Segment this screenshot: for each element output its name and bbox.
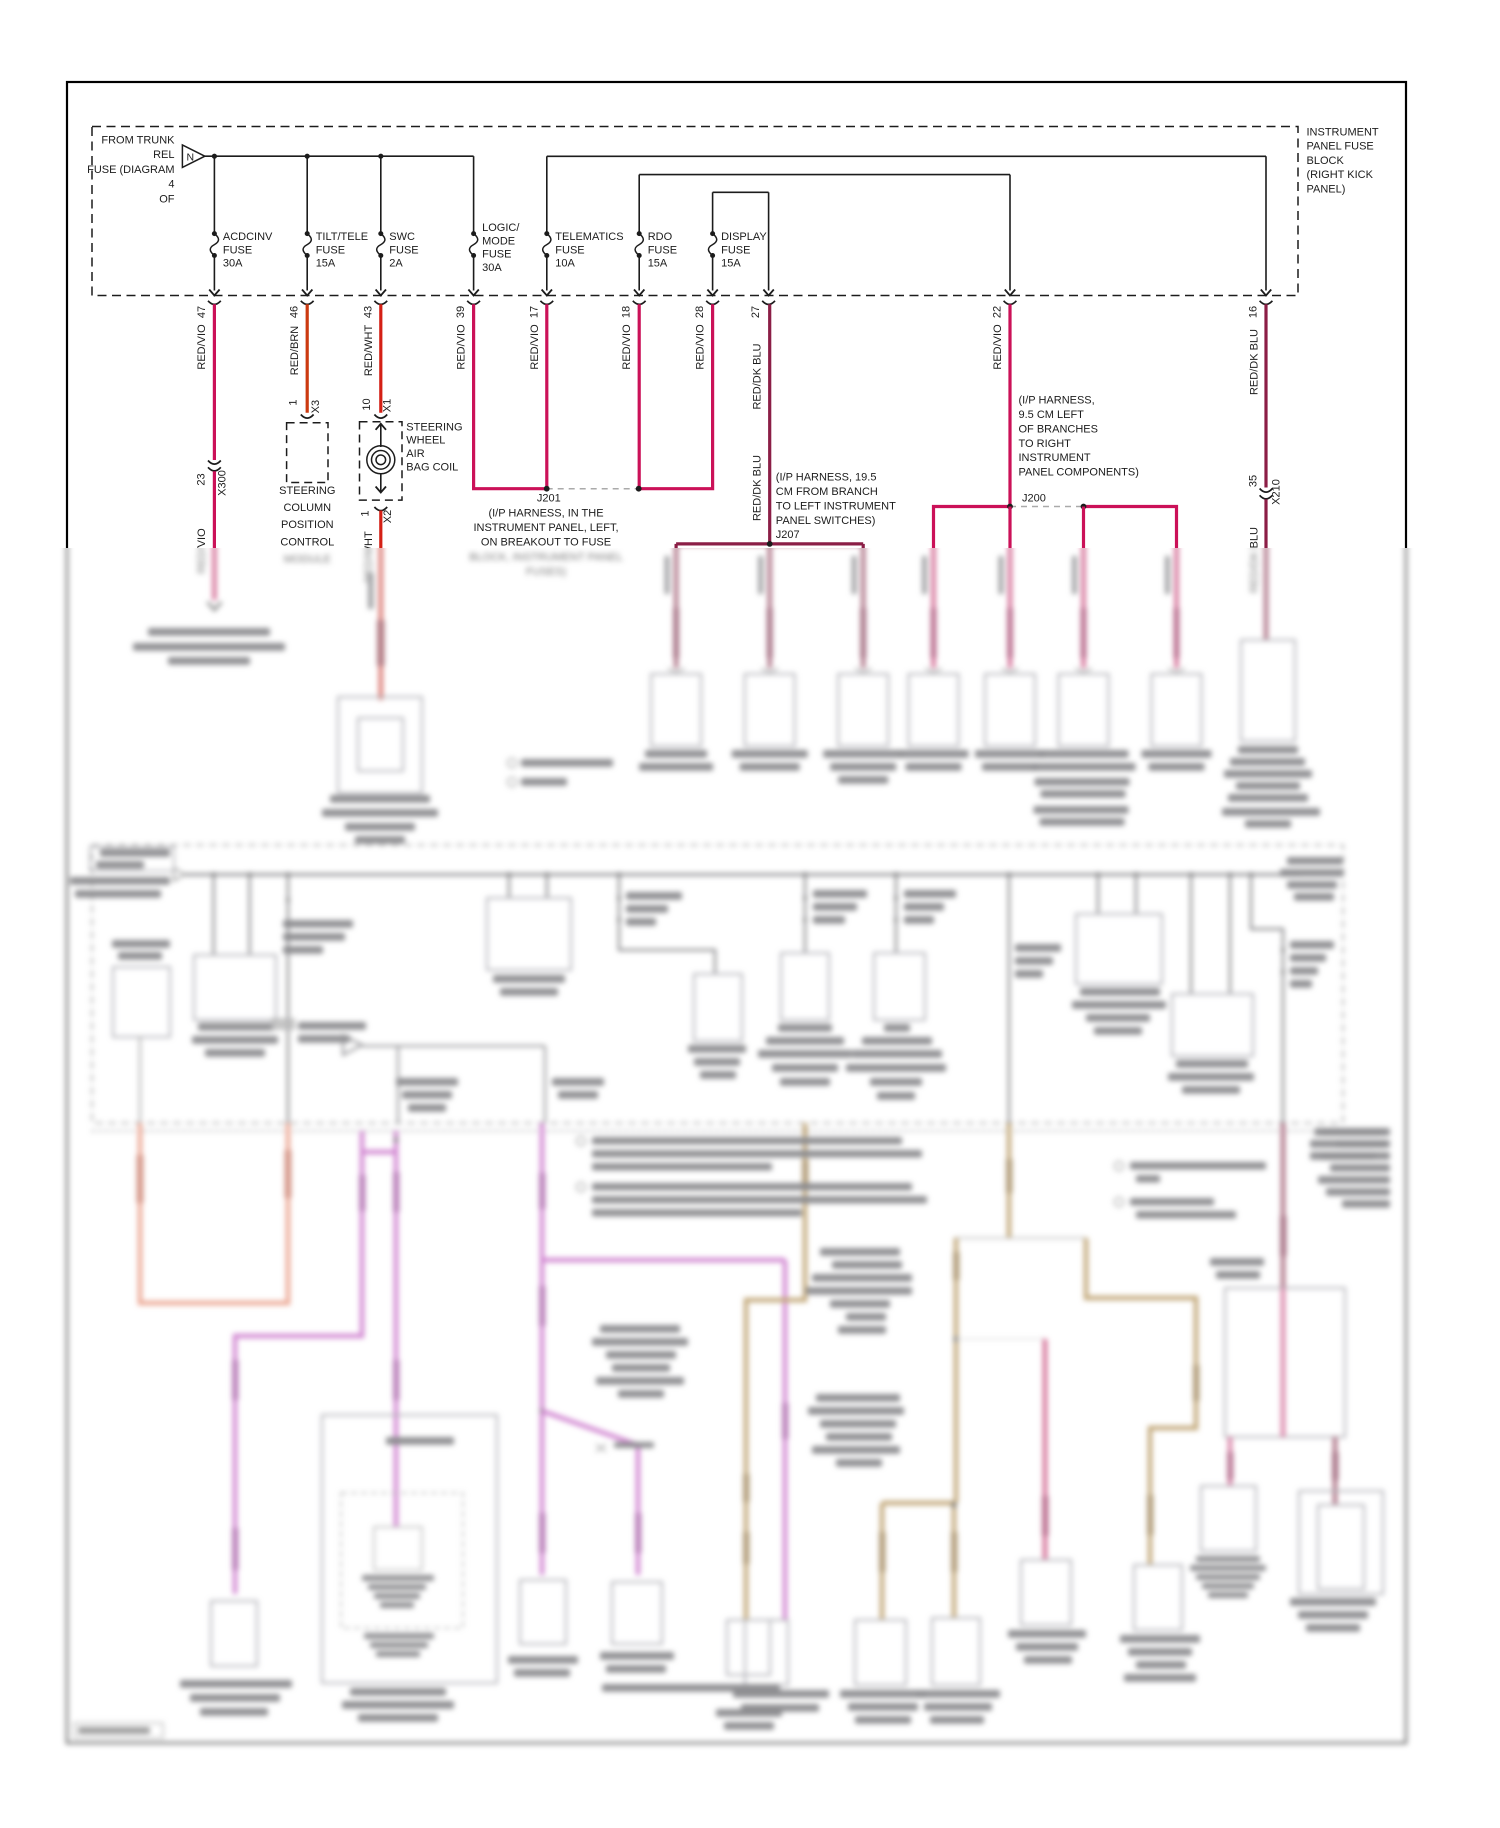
- svg-text:1: 1: [288, 399, 300, 405]
- svg-text:X3: X3: [310, 400, 322, 413]
- svg-text:POSITION: POSITION: [281, 519, 334, 531]
- svg-text:X1: X1: [381, 399, 393, 412]
- svg-text:SWC: SWC: [389, 231, 415, 243]
- svg-text:TO LEFT INSTRUMENT: TO LEFT INSTRUMENT: [776, 500, 896, 512]
- svg-text:47: 47: [196, 306, 208, 318]
- svg-text:RED/WHT: RED/WHT: [363, 531, 375, 548]
- svg-text:(RIGHT KICK: (RIGHT KICK: [1307, 169, 1374, 181]
- svg-text:FUSE: FUSE: [555, 244, 584, 256]
- svg-text:DISPLAY: DISPLAY: [721, 231, 767, 243]
- svg-text:X2: X2: [382, 510, 394, 523]
- svg-text:RED/VIO: RED/VIO: [196, 528, 208, 548]
- svg-text:AIR: AIR: [406, 448, 424, 460]
- svg-text:RED/VIO: RED/VIO: [456, 324, 468, 370]
- svg-text:RED/WHT: RED/WHT: [363, 325, 375, 377]
- svg-text:43: 43: [362, 306, 374, 318]
- svg-text:18: 18: [621, 306, 633, 318]
- svg-text:INSTRUMENT: INSTRUMENT: [1019, 452, 1091, 464]
- svg-text:FUSE: FUSE: [721, 244, 750, 256]
- svg-text:PANEL): PANEL): [1307, 183, 1346, 195]
- svg-text:15A: 15A: [316, 258, 336, 270]
- svg-text:15A: 15A: [648, 258, 668, 270]
- svg-text:RED/VIO: RED/VIO: [695, 324, 707, 370]
- svg-text:X300: X300: [216, 470, 228, 496]
- svg-text:RED/DK BLU: RED/DK BLU: [1248, 527, 1260, 548]
- svg-text:30A: 30A: [223, 258, 243, 270]
- svg-text:REL: REL: [153, 149, 174, 161]
- svg-text:17: 17: [528, 306, 540, 318]
- svg-text:RED/VIO: RED/VIO: [529, 324, 541, 370]
- svg-text:(I/P HARNESS, IN THE: (I/P HARNESS, IN THE: [488, 507, 603, 519]
- svg-text:J207: J207: [776, 529, 800, 541]
- svg-text:23: 23: [196, 473, 208, 485]
- svg-text:OF BRANCHES: OF BRANCHES: [1019, 423, 1098, 435]
- svg-text:28: 28: [694, 306, 706, 318]
- svg-text:1: 1: [360, 510, 372, 516]
- svg-text:PANEL FUSE: PANEL FUSE: [1307, 141, 1374, 153]
- svg-text:27: 27: [750, 306, 762, 318]
- svg-text:(I/P HARNESS, 19.5: (I/P HARNESS, 19.5: [776, 472, 877, 484]
- svg-text:COLUMN: COLUMN: [283, 502, 331, 514]
- svg-text:INSTRUMENT: INSTRUMENT: [1307, 127, 1379, 139]
- svg-text:PANEL SWITCHES): PANEL SWITCHES): [776, 515, 876, 527]
- svg-text:46: 46: [289, 306, 301, 318]
- svg-text:RED/BRN: RED/BRN: [289, 326, 301, 376]
- svg-text:TELEMATICS: TELEMATICS: [555, 231, 623, 243]
- svg-text:CONTROL: CONTROL: [280, 536, 334, 548]
- svg-text:FROM TRUNK: FROM TRUNK: [101, 135, 175, 147]
- svg-text:RED/DK BLU: RED/DK BLU: [1248, 329, 1260, 395]
- svg-text:FUSE: FUSE: [389, 244, 418, 256]
- svg-text:RED/VIO: RED/VIO: [196, 324, 208, 370]
- svg-text:ACDCINV: ACDCINV: [223, 231, 273, 243]
- svg-text:9.5 CM LEFT: 9.5 CM LEFT: [1019, 409, 1085, 421]
- svg-text:FUSE: FUSE: [223, 244, 252, 256]
- svg-text:FUSE: FUSE: [648, 244, 677, 256]
- svg-text:ON BREAKOUT TO FUSE: ON BREAKOUT TO FUSE: [481, 537, 611, 548]
- svg-text:35: 35: [1248, 475, 1260, 487]
- svg-text:WHEEL: WHEEL: [406, 435, 445, 447]
- svg-text:J201: J201: [537, 493, 561, 505]
- svg-text:10A: 10A: [555, 258, 575, 270]
- svg-text:FUSE: FUSE: [482, 249, 511, 261]
- svg-text:STEERING: STEERING: [279, 485, 335, 497]
- svg-text:BLOCK: BLOCK: [1307, 155, 1345, 167]
- svg-text:39: 39: [455, 306, 467, 318]
- svg-text:MODE: MODE: [482, 235, 515, 247]
- svg-text:X210: X210: [1271, 479, 1283, 505]
- svg-text:LOGIC/: LOGIC/: [482, 222, 520, 234]
- svg-text:15A: 15A: [721, 258, 741, 270]
- svg-text:FUSE (DIAGRAM: FUSE (DIAGRAM: [87, 164, 174, 176]
- svg-text:4: 4: [168, 179, 174, 191]
- svg-text:2A: 2A: [389, 258, 403, 270]
- svg-text:22: 22: [992, 306, 1004, 318]
- svg-text:TILT/TELE: TILT/TELE: [316, 231, 368, 243]
- svg-text:(I/P HARNESS,: (I/P HARNESS,: [1019, 395, 1095, 407]
- svg-text:N: N: [187, 152, 195, 164]
- svg-text:RED/VIO: RED/VIO: [992, 324, 1004, 370]
- svg-text:STEERING: STEERING: [406, 421, 462, 433]
- svg-text:16: 16: [1248, 306, 1260, 318]
- svg-text:TO RIGHT: TO RIGHT: [1019, 438, 1072, 450]
- svg-text:CM FROM BRANCH: CM FROM BRANCH: [776, 486, 878, 498]
- svg-text:10: 10: [361, 398, 373, 410]
- svg-text:FUSE: FUSE: [316, 244, 345, 256]
- svg-text:RED/DK BLU: RED/DK BLU: [752, 343, 764, 409]
- svg-text:J200: J200: [1022, 493, 1046, 505]
- svg-text:INSTRUMENT PANEL, LEFT,: INSTRUMENT PANEL, LEFT,: [473, 522, 618, 534]
- svg-text:RED/VIO: RED/VIO: [621, 324, 633, 370]
- svg-text:PANEL COMPONENTS): PANEL COMPONENTS): [1019, 467, 1139, 479]
- svg-text:BAG COIL: BAG COIL: [406, 461, 458, 473]
- svg-text:RED/DK BLU: RED/DK BLU: [752, 455, 764, 521]
- svg-text:OF: OF: [159, 193, 175, 205]
- svg-text:RDO: RDO: [648, 231, 673, 243]
- svg-text:30A: 30A: [482, 262, 502, 274]
